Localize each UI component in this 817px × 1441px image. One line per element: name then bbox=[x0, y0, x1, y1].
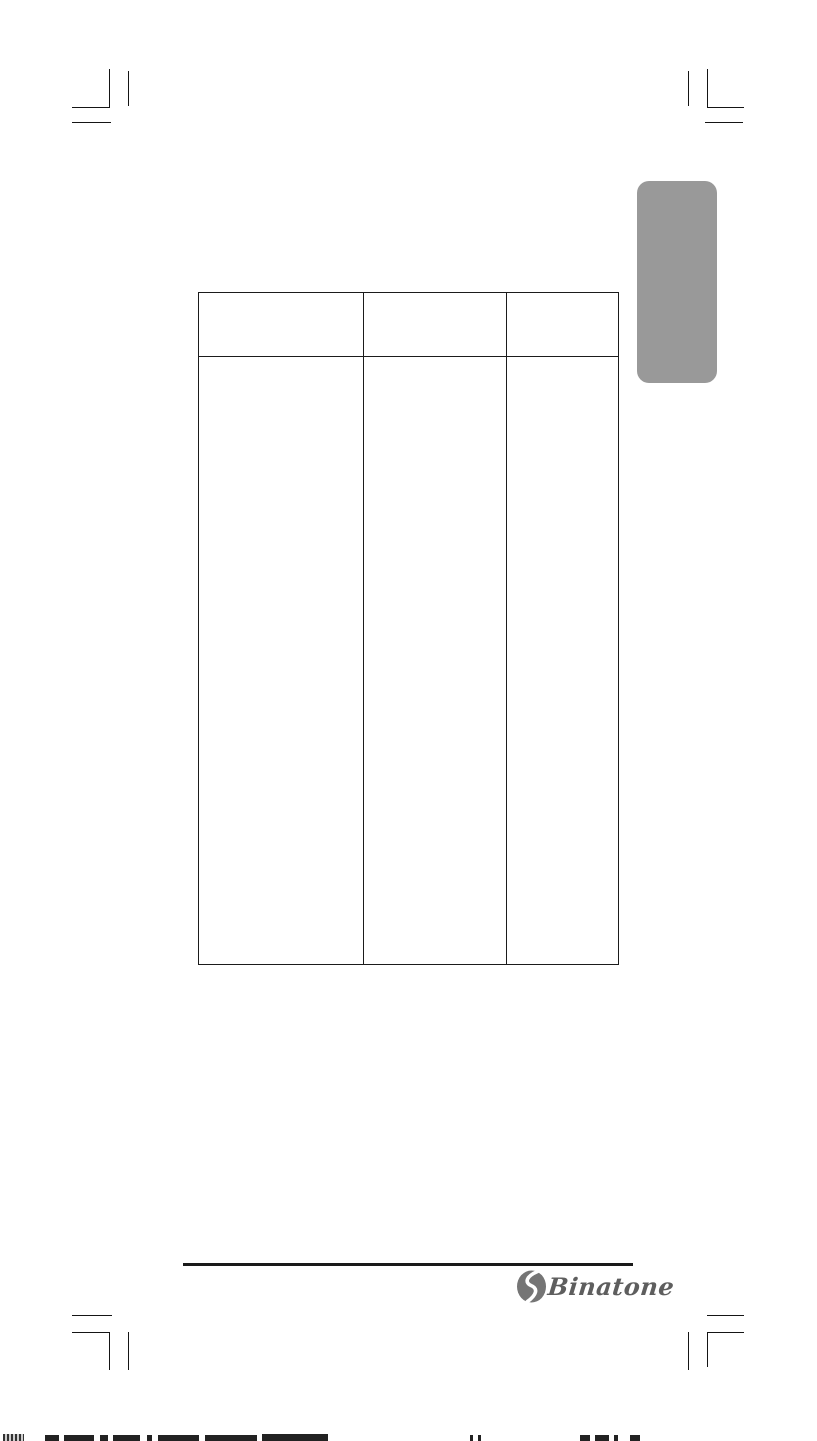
document-page: Binatone bbox=[0, 0, 817, 1441]
print-slug-mark bbox=[580, 1435, 590, 1441]
print-slug-mark bbox=[113, 1435, 140, 1441]
spec-table bbox=[198, 292, 619, 965]
print-color-bar bbox=[3, 1434, 24, 1441]
crop-mark bbox=[707, 1332, 708, 1367]
crop-mark bbox=[72, 1332, 110, 1333]
print-slug-mark bbox=[470, 1435, 473, 1441]
section-tab bbox=[637, 181, 717, 383]
crop-mark bbox=[707, 69, 708, 108]
crop-mark bbox=[688, 71, 689, 106]
print-slug-mark bbox=[205, 1435, 257, 1441]
crop-mark bbox=[72, 1315, 112, 1316]
table-header-cell bbox=[199, 293, 364, 357]
binatone-logo: Binatone bbox=[516, 1270, 674, 1303]
crop-mark bbox=[705, 122, 743, 123]
crop-mark bbox=[707, 107, 744, 108]
print-slug-mark bbox=[630, 1435, 640, 1441]
print-slug-mark bbox=[45, 1435, 59, 1441]
crop-mark bbox=[109, 69, 110, 108]
print-slug-mark bbox=[614, 1435, 618, 1441]
print-slug-mark bbox=[158, 1435, 199, 1441]
footer-rule bbox=[183, 1263, 633, 1266]
print-slug-mark bbox=[595, 1435, 609, 1441]
table-cell bbox=[199, 357, 364, 964]
table-header-cell bbox=[364, 293, 507, 357]
print-slug-mark bbox=[147, 1435, 152, 1441]
print-slug-mark bbox=[100, 1435, 108, 1441]
table-header-cell bbox=[507, 293, 618, 357]
table-cell bbox=[507, 357, 618, 964]
binatone-logo-icon bbox=[516, 1270, 547, 1303]
crop-mark bbox=[72, 107, 110, 108]
crop-mark bbox=[109, 1332, 110, 1370]
crop-mark bbox=[128, 71, 129, 106]
print-slug-mark bbox=[478, 1435, 481, 1441]
table-cell bbox=[364, 357, 507, 964]
binatone-logo-text: Binatone bbox=[547, 1275, 676, 1299]
crop-mark bbox=[707, 1315, 744, 1316]
print-slug-mark bbox=[262, 1434, 328, 1441]
crop-mark bbox=[128, 1332, 129, 1370]
print-slug-mark bbox=[64, 1435, 94, 1441]
crop-mark bbox=[688, 1332, 689, 1370]
crop-mark bbox=[72, 122, 111, 123]
crop-mark bbox=[707, 1332, 744, 1333]
